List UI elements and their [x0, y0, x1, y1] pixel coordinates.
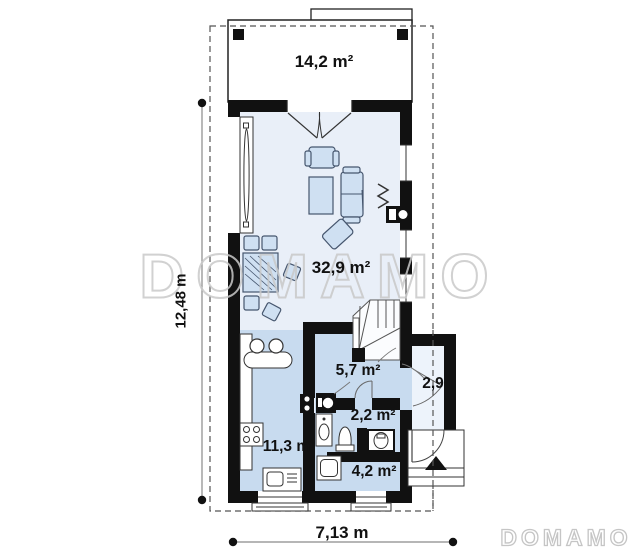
column-icon [397, 29, 408, 40]
window-icon [351, 491, 391, 511]
window-icon [400, 230, 412, 258]
boiler-icon [304, 405, 309, 410]
dimension-height-label: 12,48 m [173, 273, 190, 328]
sink-icon [368, 430, 394, 451]
entry-area-label: 4,2 m² [352, 463, 397, 481]
column-icon [233, 29, 244, 40]
armchair-icon [309, 147, 335, 168]
armchair-icon [305, 151, 311, 166]
living-room-area-label: 32,9 m² [312, 258, 371, 278]
vestibule-doorway [400, 368, 412, 410]
vestibule-wall-right [444, 334, 456, 432]
sofa-icon [343, 167, 360, 173]
sink-icon [250, 339, 264, 353]
window-icon [400, 145, 412, 181]
washing-machine-icon [317, 456, 341, 480]
coffee-table-icon [309, 177, 333, 214]
dimension-line-left [198, 99, 206, 504]
boiler-icon [304, 396, 309, 401]
flue-icon [318, 398, 322, 407]
stove-icon [240, 423, 263, 446]
wall-kitchen-hall [303, 334, 315, 398]
vestibule-area-label: 2,9 [422, 375, 444, 393]
sink-icon [269, 339, 283, 353]
washbasin-icon [316, 414, 332, 446]
porch-step [408, 477, 464, 486]
flue-icon [323, 398, 333, 408]
fireplace-icon [386, 206, 410, 223]
armchair-icon [333, 151, 339, 166]
chair-icon [244, 236, 259, 250]
oven-icon [263, 468, 301, 491]
window-icon [252, 491, 308, 511]
hall-area-label: 5,7 m² [336, 362, 381, 380]
bathroom-area-label: 2,2 m² [351, 407, 396, 425]
dimension-width-label: 7,13 m [316, 523, 369, 543]
terrace-area-label: 14,2 m² [295, 52, 354, 72]
window-icon [228, 117, 253, 233]
floor-plan-page: DOMAMO DOMAMO 14,2 m² 32,9 m² 5,7 m² 2,9… [0, 0, 640, 555]
kitchen-area-label: 11,3 m² [263, 438, 316, 456]
window-icon [400, 274, 412, 302]
wall-bathroom-niche [357, 428, 367, 452]
chair-icon [262, 236, 277, 250]
chair-icon [244, 296, 259, 310]
